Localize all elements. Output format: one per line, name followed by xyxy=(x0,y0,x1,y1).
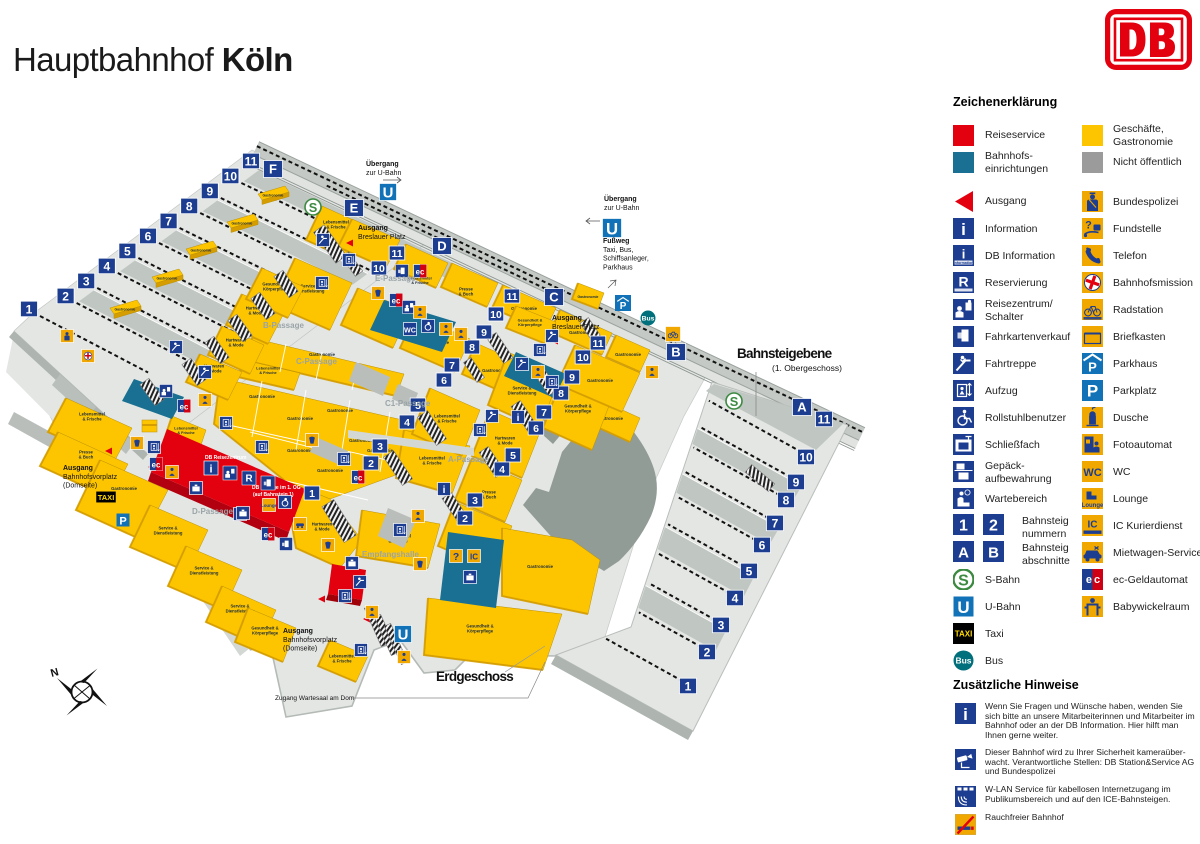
svg-text:7: 7 xyxy=(541,407,547,419)
svg-text:10: 10 xyxy=(224,169,238,183)
svg-text:?: ? xyxy=(1085,219,1092,231)
svg-text:2: 2 xyxy=(62,289,69,303)
svg-text:2: 2 xyxy=(462,513,468,525)
svg-text:C: C xyxy=(549,290,559,305)
svg-text:D: D xyxy=(437,239,446,254)
svg-text:U: U xyxy=(398,627,409,644)
svg-text:Übergangzur U-Bahn: Übergangzur U-Bahn xyxy=(604,194,640,212)
svg-text:i: i xyxy=(443,485,446,496)
svg-text:TAXI: TAXI xyxy=(955,629,973,638)
svg-text:Übergangzur U-Bahn: Übergangzur U-Bahn xyxy=(366,159,402,177)
svg-text:FußwegTaxi, Bus,Schiffsanleger: FußwegTaxi, Bus,Schiffsanleger,Parkhaus xyxy=(603,238,649,271)
svg-text:9: 9 xyxy=(793,475,800,489)
svg-text:6: 6 xyxy=(533,423,539,435)
svg-text:Lounge: Lounge xyxy=(1082,503,1103,509)
svg-text:Gastronomie: Gastronomie xyxy=(578,295,599,299)
svg-text:8: 8 xyxy=(558,388,564,400)
svg-text:9: 9 xyxy=(569,372,575,384)
svg-text:Gastronomie: Gastronomie xyxy=(287,416,313,421)
svg-text:8: 8 xyxy=(783,493,790,507)
svg-text:C-Passage: C-Passage xyxy=(296,357,337,366)
svg-text:IC: IC xyxy=(470,553,478,562)
svg-text:A: A xyxy=(958,545,969,562)
svg-text:10: 10 xyxy=(799,450,813,464)
svg-text:4: 4 xyxy=(499,464,505,476)
svg-text:ec: ec xyxy=(264,531,273,540)
svg-text:Empfangshalle: Empfangshalle xyxy=(362,550,419,559)
svg-text:Gastronomie: Gastronomie xyxy=(232,222,253,226)
svg-text:B: B xyxy=(671,345,680,360)
svg-text:B: B xyxy=(988,545,999,562)
svg-text:Gastronomie: Gastronomie xyxy=(157,277,178,281)
svg-text:TAXI: TAXI xyxy=(98,493,115,502)
svg-text:7: 7 xyxy=(772,516,779,530)
svg-text:P: P xyxy=(119,515,126,527)
svg-text:4: 4 xyxy=(732,591,739,605)
svg-text:1: 1 xyxy=(26,302,33,316)
svg-text:(1. Obergeschoss): (1. Obergeschoss) xyxy=(772,363,842,373)
svg-text:Erdgeschoss: Erdgeschoss xyxy=(436,669,513,684)
svg-text:3: 3 xyxy=(718,618,725,632)
svg-text:WC: WC xyxy=(404,326,416,334)
svg-text:Presse& Buch: Presse& Buch xyxy=(459,286,474,296)
svg-text:C1-Passage: C1-Passage xyxy=(385,399,431,408)
svg-text:A-Passage: A-Passage xyxy=(448,455,489,464)
svg-text:1: 1 xyxy=(685,679,692,693)
svg-text:D-Passage: D-Passage xyxy=(192,507,233,516)
svg-text:Hartwaren& Mode: Hartwaren& Mode xyxy=(495,435,516,445)
svg-text:E: E xyxy=(350,201,359,216)
svg-text:10: 10 xyxy=(577,352,589,364)
svg-text:P: P xyxy=(620,301,627,312)
svg-text:10: 10 xyxy=(490,309,502,321)
svg-text:Gesundheit &Körperpflege: Gesundheit &Körperpflege xyxy=(564,403,591,413)
svg-text:i: i xyxy=(209,463,212,475)
svg-text:Gastronomie: Gastronomie xyxy=(115,308,136,312)
svg-text:i: i xyxy=(961,220,966,239)
svg-text:Gastronomie: Gastronomie xyxy=(111,486,137,491)
svg-text:Presse& Buch: Presse& Buch xyxy=(79,449,94,459)
svg-text:Gastronomie: Gastronomie xyxy=(527,564,553,569)
svg-text:2: 2 xyxy=(989,518,998,535)
svg-text:Lebensmittel& Frische: Lebensmittel& Frische xyxy=(419,455,445,465)
svg-text:11: 11 xyxy=(391,248,402,260)
svg-text:Hartwaren& Mode: Hartwaren& Mode xyxy=(312,521,333,531)
svg-text:Lebensmittel& Frische: Lebensmittel& Frische xyxy=(256,367,279,375)
svg-text:S: S xyxy=(958,572,969,589)
svg-text:Gastronomie: Gastronomie xyxy=(263,194,284,198)
svg-text:?: ? xyxy=(453,552,459,563)
svg-text:DB Lounge im 1. OG: DB Lounge im 1. OG xyxy=(252,485,301,491)
svg-text:3: 3 xyxy=(83,274,90,288)
svg-text:S: S xyxy=(309,200,318,215)
svg-text:P: P xyxy=(1087,381,1098,400)
svg-text:11: 11 xyxy=(506,291,517,303)
svg-text:5: 5 xyxy=(746,564,753,578)
svg-text:1: 1 xyxy=(959,518,968,535)
svg-text:Gastronomie: Gastronomie xyxy=(317,468,343,473)
svg-text:Bus: Bus xyxy=(642,316,655,323)
svg-text:DB Reisezentrum: DB Reisezentrum xyxy=(205,455,247,461)
svg-text:Information: Information xyxy=(954,260,974,264)
svg-text:6: 6 xyxy=(441,375,447,387)
svg-text:Presse& Buch: Presse& Buch xyxy=(482,489,497,499)
svg-text:U: U xyxy=(957,598,969,617)
svg-text:i: i xyxy=(963,705,968,724)
svg-text:3: 3 xyxy=(472,495,478,507)
svg-text:Gesundheit &Körperpflege: Gesundheit &Körperpflege xyxy=(251,625,278,635)
svg-text:2: 2 xyxy=(704,645,711,659)
svg-text:11: 11 xyxy=(245,154,258,168)
svg-text:Lebensmittel& Frische: Lebensmittel& Frische xyxy=(323,219,349,229)
svg-text:Gastronomie: Gastronomie xyxy=(287,448,313,453)
svg-text:R: R xyxy=(245,474,252,485)
svg-text:5: 5 xyxy=(124,244,131,258)
svg-text:11: 11 xyxy=(818,412,831,426)
svg-text:9: 9 xyxy=(206,184,213,198)
svg-text:8: 8 xyxy=(186,199,193,213)
svg-text:P: P xyxy=(1088,359,1097,374)
svg-text:Gastronomie: Gastronomie xyxy=(249,394,275,399)
svg-text:S: S xyxy=(730,394,739,409)
svg-text:B-Passage: B-Passage xyxy=(263,321,304,330)
svg-text:Gastronomie: Gastronomie xyxy=(191,249,212,253)
svg-text:3: 3 xyxy=(377,441,383,453)
svg-text:ec: ec xyxy=(392,297,401,306)
svg-text:ec: ec xyxy=(416,268,425,277)
svg-text:Zugang Wartesaal am Dom: Zugang Wartesaal am Dom xyxy=(275,695,354,702)
svg-text:5: 5 xyxy=(510,450,516,462)
svg-text:WC: WC xyxy=(1083,467,1101,479)
svg-text:A: A xyxy=(797,400,807,415)
svg-text:9: 9 xyxy=(481,327,487,339)
svg-text:R: R xyxy=(958,273,968,289)
svg-text:7: 7 xyxy=(449,360,455,372)
svg-text:Lebensmittel& Frische: Lebensmittel& Frische xyxy=(329,653,355,663)
svg-text:2: 2 xyxy=(368,458,374,470)
svg-text:E-Passage: E-Passage xyxy=(375,274,416,283)
svg-text:6: 6 xyxy=(759,538,766,552)
svg-text:6: 6 xyxy=(145,229,152,243)
svg-text:Gastronomie: Gastronomie xyxy=(615,352,641,357)
svg-text:c: c xyxy=(1094,574,1100,586)
svg-text:4: 4 xyxy=(103,259,110,273)
svg-text:F: F xyxy=(269,162,277,177)
svg-text:U: U xyxy=(383,185,394,202)
svg-text:8: 8 xyxy=(469,342,475,354)
svg-text:ec: ec xyxy=(354,474,363,483)
svg-text:N: N xyxy=(49,666,60,680)
svg-text:Gesundheit &Körperpflege: Gesundheit &Körperpflege xyxy=(466,623,493,633)
svg-text:Bus: Bus xyxy=(955,655,971,665)
svg-text:e: e xyxy=(1086,574,1092,586)
svg-text:Lebensmittel& Frische: Lebensmittel& Frische xyxy=(79,411,105,421)
svg-text:11: 11 xyxy=(592,338,603,350)
svg-text:1: 1 xyxy=(309,488,315,500)
svg-text:ec: ec xyxy=(152,461,161,470)
svg-text:10: 10 xyxy=(373,263,385,275)
svg-text:Gastronomie: Gastronomie xyxy=(587,378,613,383)
svg-text:Gastronomie: Gastronomie xyxy=(327,408,353,413)
svg-text:7: 7 xyxy=(165,214,172,228)
svg-text:U: U xyxy=(606,219,618,238)
svg-text:Lebensmittel& Frische: Lebensmittel& Frische xyxy=(434,413,460,423)
svg-text:4: 4 xyxy=(404,417,410,429)
svg-text:Lounge: Lounge xyxy=(261,503,277,508)
svg-text:Gesundheit &Körperpflege: Gesundheit &Körperpflege xyxy=(518,319,543,327)
svg-text:ec: ec xyxy=(180,403,189,412)
svg-text:i: i xyxy=(517,413,520,424)
svg-text:i: i xyxy=(962,246,966,261)
svg-text:Bahnsteigebene: Bahnsteigebene xyxy=(737,346,833,361)
